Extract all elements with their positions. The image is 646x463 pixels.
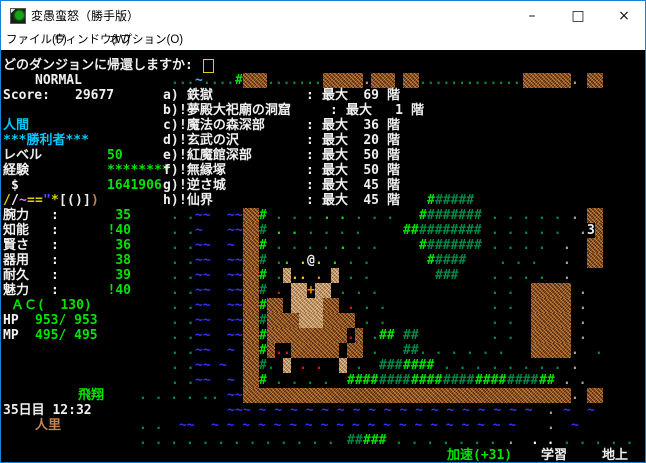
- map-glyph: .: [595, 343, 611, 358]
- dungeon-sep: :: [306, 178, 314, 193]
- dungeon-name: !魔法の森深部: [179, 118, 265, 133]
- map-glyph: .: [371, 328, 379, 343]
- map-glyph: . .: [171, 238, 194, 253]
- map-glyph: ###: [435, 268, 458, 283]
- wall-block: [323, 73, 363, 88]
- map-glyph: ###: [379, 358, 402, 373]
- equip-glyph: /: [11, 193, 19, 208]
- map-glyph: .: [579, 223, 587, 238]
- map-glyph: . .: [363, 298, 386, 313]
- map-glyph: ~~: [227, 403, 243, 418]
- map-glyph: .: [283, 253, 291, 268]
- map-glyph: . . . . . . . . . . . . .: [139, 433, 335, 448]
- wall-block: [355, 328, 363, 343]
- map-glyph: ####: [403, 358, 434, 373]
- map-glyph: . .: [355, 238, 378, 253]
- map-glyph: . .: [171, 208, 194, 223]
- dungeon-item[interactable]: h)!仙界:最大45階: [163, 193, 443, 208]
- close-button[interactable]: ×: [601, 1, 646, 31]
- map-glyph: #: [259, 298, 267, 313]
- map-glyph: . .: [323, 208, 346, 223]
- map-glyph: ~: [195, 223, 203, 238]
- map-glyph: .: [331, 253, 339, 268]
- map-glyph: ####: [435, 253, 466, 268]
- dungeon-name: !夢殿大祀廟の洞窟: [179, 103, 291, 118]
- dungeon-depth: 50: [355, 148, 379, 163]
- map-glyph: ~: [227, 238, 235, 253]
- wall-block: [531, 283, 571, 298]
- menu-option[interactable]: オプション(O): [109, 33, 183, 48]
- wall-block: [595, 223, 603, 238]
- map-glyph: . .: [347, 253, 370, 268]
- map-glyph: ....: [203, 73, 234, 88]
- equip-glyph: ]: [83, 193, 91, 208]
- map-glyph: #: [259, 283, 267, 298]
- dungeon-key: b): [163, 103, 179, 118]
- map-glyph: ~~: [195, 328, 211, 343]
- equip-glyph: /: [3, 193, 11, 208]
- map-glyph: ~~: [195, 208, 211, 223]
- equip-glyph: ": [43, 193, 51, 208]
- score-value: 29677: [75, 88, 114, 103]
- map-glyph: ~: [587, 403, 595, 418]
- dungeon-max-label: 最大: [322, 133, 348, 148]
- map-glyph: .: [339, 238, 347, 253]
- map-glyph: .: [291, 268, 299, 283]
- map-glyph: ~~: [179, 418, 195, 433]
- map-glyph: . . . .: [491, 238, 546, 253]
- dungeon-key: g): [163, 178, 179, 193]
- map-glyph: . .: [171, 268, 194, 283]
- map-glyph: #: [259, 223, 267, 238]
- map-glyph: . .: [491, 298, 514, 313]
- location-name: 人里: [35, 418, 61, 433]
- map-glyph: ####: [347, 373, 378, 388]
- map-glyph: ~~: [227, 388, 243, 403]
- map-glyph: ~~: [195, 283, 211, 298]
- dungeon-unit: 階: [387, 193, 400, 208]
- stat-colon: :: [51, 223, 59, 238]
- map-glyph: . .: [563, 373, 586, 388]
- wall-block: [267, 343, 275, 358]
- mode-indicator: NORMAL: [35, 73, 82, 88]
- map-glyph: #: [235, 73, 243, 88]
- map-glyph: .: [571, 73, 587, 88]
- map-glyph: .: [507, 433, 523, 448]
- wall-block: [403, 73, 419, 88]
- map-glyph: ~~: [227, 313, 243, 328]
- map-glyph: . .: [491, 283, 514, 298]
- dungeon-depth: 36: [355, 118, 379, 133]
- map-glyph: ~~: [195, 268, 211, 283]
- equip-glyph: =: [27, 193, 35, 208]
- building-block: [283, 358, 291, 373]
- map-glyph: .: [563, 268, 579, 283]
- hp-value: 953/ 953: [35, 313, 98, 328]
- map-glyph: . .: [347, 268, 370, 283]
- dungeon-key: a): [163, 88, 179, 103]
- map-glyph: . . . .: [275, 373, 330, 388]
- text-cursor: [203, 59, 214, 73]
- wall-block: [243, 223, 259, 238]
- map-glyph: ~~: [195, 253, 211, 268]
- wall-block: [531, 328, 571, 343]
- dungeon-item[interactable]: g)!逆さ城:最大45階: [163, 178, 443, 193]
- map-glyph: . .: [171, 328, 194, 343]
- learning-status: 学習: [541, 448, 567, 463]
- dungeon-max-label: 最大: [322, 148, 348, 163]
- dungeon-item[interactable]: f)!無縁塚:最大50階: [163, 163, 443, 178]
- score-label: Score:: [3, 88, 50, 103]
- map-glyph: . .: [363, 313, 386, 328]
- building-block: [299, 313, 323, 328]
- dungeon-key: h): [163, 193, 179, 208]
- map-glyph: ~: [195, 73, 203, 88]
- stat-label: 耐久: [3, 268, 29, 283]
- wall-block: [243, 388, 571, 403]
- map-glyph: ~ ~ ~ ~ ~ ~ ~ ~ ~ ~ ~ ~ ~ ~ ~ ~ ~ ~ ~: [243, 403, 533, 418]
- map-glyph: +: [307, 283, 315, 298]
- map-glyph: @: [307, 253, 315, 268]
- dungeon-unit: 階: [387, 133, 400, 148]
- map-glyph: ...: [171, 73, 194, 88]
- dungeon-name: 鉄獄: [179, 88, 213, 103]
- map-glyph: 3: [587, 223, 595, 238]
- dungeon-max-label: 最大: [322, 118, 348, 133]
- equip-glyph: *: [51, 193, 59, 208]
- window-title: 変愚蛮怒（勝手版）: [31, 9, 139, 23]
- map-glyph: . .: [171, 223, 194, 238]
- map-glyph: . . . . . . .: [395, 433, 497, 448]
- map-glyph: . . . . .: [491, 208, 561, 223]
- wall-block: [587, 238, 603, 253]
- mp-value: 495/ 495: [35, 328, 98, 343]
- map-glyph: .: [579, 313, 587, 328]
- map-glyph: #: [419, 208, 427, 223]
- stat-value: 36: [91, 238, 131, 253]
- stat-label: 器用: [3, 253, 29, 268]
- stat-value: !40: [91, 283, 131, 298]
- wall-block: [243, 313, 259, 328]
- app-icon: [10, 8, 26, 24]
- map-glyph: ~~: [227, 268, 243, 283]
- wall-block: [243, 358, 259, 373]
- map-glyph: #: [259, 358, 267, 373]
- map-glyph: #: [259, 313, 267, 328]
- map-glyph: .: [563, 253, 571, 268]
- race-label: 人間: [3, 118, 29, 133]
- dungeon-sep: :: [306, 133, 314, 148]
- dungeon-key: c): [163, 118, 179, 133]
- level-value: 50: [107, 148, 123, 163]
- dungeon-max-label: 最大: [346, 103, 372, 118]
- maximize-button[interactable]: □: [555, 1, 601, 31]
- map-glyph: ###: [363, 433, 386, 448]
- wall-block: [267, 313, 299, 328]
- map-glyph: .: [339, 283, 347, 298]
- equip-glyph: ): [75, 193, 83, 208]
- player-title: ***勝利者***: [3, 133, 89, 148]
- equip-glyph: [: [59, 193, 67, 208]
- map-glyph: .: [571, 343, 587, 358]
- map-glyph: ##: [379, 328, 395, 343]
- building-block: [315, 283, 331, 298]
- map-glyph: ~~: [227, 223, 243, 238]
- building-block: [291, 283, 307, 298]
- dungeon-key: f): [163, 163, 179, 178]
- dungeon-max-label: 最大: [322, 88, 348, 103]
- wall-block: [267, 328, 347, 343]
- map-glyph: ####: [411, 373, 442, 388]
- map-glyph: .: [547, 418, 555, 433]
- map-glyph: .: [563, 238, 579, 253]
- dungeon-unit: 階: [387, 163, 400, 178]
- map-glyph: ####: [379, 373, 410, 388]
- map-glyph: #: [259, 328, 267, 343]
- dungeon-unit: 階: [387, 88, 400, 103]
- map-glyph: .: [371, 343, 387, 358]
- wall-block: [531, 343, 571, 358]
- app-window: 変愚蛮怒（勝手版） – □ × ファイル(F) ウィンドウ(W) オプション(O…: [0, 0, 646, 463]
- wall-block: [587, 73, 603, 88]
- dungeon-unit: 階: [387, 118, 400, 133]
- dungeon-unit: 階: [387, 148, 400, 163]
- map-glyph: . .: [491, 328, 514, 343]
- map-glyph: . .: [491, 313, 514, 328]
- map-glyph: ~~: [195, 238, 211, 253]
- wall-block: [347, 343, 363, 358]
- map-glyph: ~~: [195, 373, 211, 388]
- dungeon-depth: 1: [379, 103, 403, 118]
- dungeon-unit: 階: [411, 103, 424, 118]
- dungeon-unit: 階: [387, 178, 400, 193]
- dungeon-sep: :: [306, 148, 314, 163]
- map-glyph: #: [259, 373, 267, 388]
- dungeon-depth: 20: [355, 133, 379, 148]
- minimize-button[interactable]: –: [509, 1, 555, 31]
- map-glyph: . .: [275, 223, 298, 238]
- map-glyph: .: [571, 208, 579, 223]
- floor-status: 地上: [602, 448, 628, 463]
- gold-symbol: $: [11, 178, 19, 193]
- wall-block: [243, 253, 259, 268]
- map-glyph: ~: [227, 343, 235, 358]
- title-bar[interactable]: 変愚蛮怒（勝手版） – □ ×: [1, 1, 645, 31]
- stat-colon: :: [51, 268, 59, 283]
- map-glyph: .: [275, 253, 283, 268]
- map-glyph: ~~: [227, 328, 243, 343]
- map-glyph: ####: [475, 373, 506, 388]
- map-glyph: .: [299, 358, 307, 373]
- map-glyph: . .: [171, 298, 194, 313]
- map-glyph: . .: [171, 358, 194, 373]
- map-glyph: .: [267, 358, 275, 373]
- building-block: [331, 268, 339, 283]
- map-glyph: . . . .: [307, 223, 362, 238]
- equip-glyph: =: [35, 193, 43, 208]
- map-glyph: #######: [427, 238, 482, 253]
- wall-block: [587, 388, 603, 403]
- map-glyph: .: [211, 388, 227, 403]
- map-glyph: #: [259, 268, 267, 283]
- building-block: [339, 358, 347, 373]
- building-block: [283, 268, 291, 283]
- map-glyph: . .: [139, 418, 162, 433]
- equip-glyph: (: [67, 193, 75, 208]
- map-glyph: .: [275, 283, 283, 298]
- wall-block: [531, 298, 571, 313]
- stat-label: 賢さ: [3, 238, 29, 253]
- flight-status: 飛翔: [78, 388, 104, 403]
- game-datetime: 35日目 12:32: [3, 403, 92, 418]
- map-glyph: .......: [267, 73, 322, 88]
- level-label: レベル: [3, 148, 42, 163]
- dungeon-max-label: 最大: [322, 163, 348, 178]
- map-glyph: ####: [443, 373, 474, 388]
- dungeon-max-label: 最大: [322, 178, 348, 193]
- map-glyph: ##: [403, 328, 419, 343]
- dungeon-item[interactable]: d)!玄武の沢:最大20階: [163, 133, 443, 148]
- map-glyph: .: [299, 253, 307, 268]
- map-glyph: .: [579, 298, 587, 313]
- stat-value: !40: [91, 223, 131, 238]
- dungeon-item[interactable]: c)!魔法の森深部:最大36階: [163, 118, 443, 133]
- ac-value: ＡＣ( 130): [11, 298, 92, 313]
- dungeon-key: e): [163, 148, 179, 163]
- hp-label: HP: [3, 313, 19, 328]
- map-glyph: . . . . .: [491, 358, 561, 373]
- wall-block: [587, 208, 603, 223]
- map-glyph: .: [275, 343, 283, 358]
- map-glyph: ##: [403, 343, 419, 358]
- map-glyph: .: [347, 298, 355, 313]
- dungeon-sep: :: [306, 193, 314, 208]
- dungeon-name: !仙界: [179, 193, 213, 208]
- map-glyph: ##: [403, 223, 419, 238]
- map-glyph: .: [315, 358, 323, 373]
- map-glyph: .: [315, 253, 323, 268]
- map-glyph: . . .: [275, 208, 314, 223]
- map-glyph: .: [579, 283, 587, 298]
- map-glyph: ####: [507, 373, 538, 388]
- dungeon-item[interactable]: a) 鉄獄:最大69階: [163, 88, 443, 103]
- map-glyph: . .: [531, 433, 554, 448]
- map-glyph: . . .: [499, 253, 538, 268]
- dungeon-depth: 50: [355, 163, 379, 178]
- map-glyph: .: [275, 268, 283, 283]
- map-glyph: ~: [219, 358, 227, 373]
- map-glyph: .: [315, 268, 323, 283]
- wall-block: [323, 298, 339, 313]
- wall-block: [243, 373, 259, 388]
- stat-label: 腕力: [3, 208, 29, 223]
- dungeon-item[interactable]: b)!夢殿大祀廟の洞窟:最大1階: [163, 103, 443, 118]
- dungeon-name: !玄武の沢: [179, 133, 239, 148]
- dungeon-name: !紅魔館深部: [179, 148, 252, 163]
- map-glyph: .: [299, 268, 307, 283]
- wall-block: [323, 313, 355, 328]
- map-glyph: #: [259, 343, 267, 358]
- map-glyph: . .: [171, 343, 194, 358]
- map-glyph: ##: [347, 433, 363, 448]
- map-glyph: . . .: [355, 208, 402, 223]
- dungeon-key: d): [163, 133, 179, 148]
- map-glyph: ~~: [195, 358, 211, 373]
- map-glyph: ~~: [227, 208, 243, 223]
- map-glyph: .: [347, 328, 355, 343]
- wall-block: [243, 328, 259, 343]
- map-glyph: . .: [171, 283, 194, 298]
- map-glyph: ~~: [227, 298, 243, 313]
- stat-value: 38: [91, 253, 131, 268]
- map-glyph: .: [283, 343, 291, 358]
- stat-colon: :: [51, 208, 59, 223]
- speed-status: 加速(+31): [447, 448, 512, 463]
- dungeon-depth: 45: [355, 193, 379, 208]
- map-glyph: ~~: [195, 313, 211, 328]
- map-glyph: . .: [171, 313, 194, 328]
- map-glyph: #: [419, 238, 427, 253]
- map-glyph: . . . .: [275, 238, 330, 253]
- map-glyph: . .: [171, 253, 194, 268]
- menu-bar: ファイル(F) ウィンドウ(W) オプション(O): [1, 31, 645, 50]
- dungeon-item[interactable]: e)!紅魔館深部:最大50階: [163, 148, 443, 163]
- wall-block: [243, 298, 259, 313]
- stat-colon: :: [51, 238, 59, 253]
- dungeon-name: !無縁塚: [179, 163, 226, 178]
- wall-block: [243, 208, 259, 223]
- dungeon-max-label: 最大: [322, 193, 348, 208]
- map-glyph: #: [259, 253, 267, 268]
- map-glyph: .: [547, 403, 555, 418]
- map-glyph: ##: [539, 373, 555, 388]
- gold-value: 1641906: [107, 178, 162, 193]
- wall-block: [243, 283, 259, 298]
- stat-label: 知能: [3, 223, 29, 238]
- wall-block: [243, 238, 259, 253]
- map-glyph: ~~: [227, 283, 243, 298]
- map-glyph: . . . . .: [491, 223, 561, 238]
- map-glyph: .: [571, 388, 587, 403]
- building-block: [291, 298, 323, 313]
- map-glyph: ~~: [195, 298, 211, 313]
- dungeon-depth: 45: [355, 178, 379, 193]
- dungeon-sep: :: [306, 163, 314, 178]
- stat-value: 35: [91, 208, 131, 223]
- map-glyph: . .: [355, 283, 378, 298]
- map-glyph: . . . . .: [139, 388, 209, 403]
- map-glyph: ~~: [227, 253, 243, 268]
- wall-block: [587, 253, 603, 268]
- map-glyph: . . .: [443, 358, 482, 373]
- map-glyph: #: [427, 253, 435, 268]
- wall-block: [523, 73, 571, 88]
- wall-block: [531, 313, 571, 328]
- exp-value: ********: [107, 163, 170, 178]
- stat-label: 魅力: [3, 283, 29, 298]
- map-glyph: . .: [171, 373, 194, 388]
- recall-prompt: どのダンジョンに帰還しますか:: [3, 58, 193, 73]
- map-glyph: .: [355, 358, 371, 373]
- equip-glyph: ): [91, 193, 99, 208]
- map-glyph: ~: [571, 418, 579, 433]
- dungeon-name: !逆さ城: [179, 178, 226, 193]
- dungeon-sep: :: [306, 118, 314, 133]
- dungeon-sep: :: [306, 88, 314, 103]
- map-glyph: . . . . . .: [419, 343, 505, 358]
- stat-colon: :: [51, 253, 59, 268]
- map-glyph: .: [571, 358, 587, 373]
